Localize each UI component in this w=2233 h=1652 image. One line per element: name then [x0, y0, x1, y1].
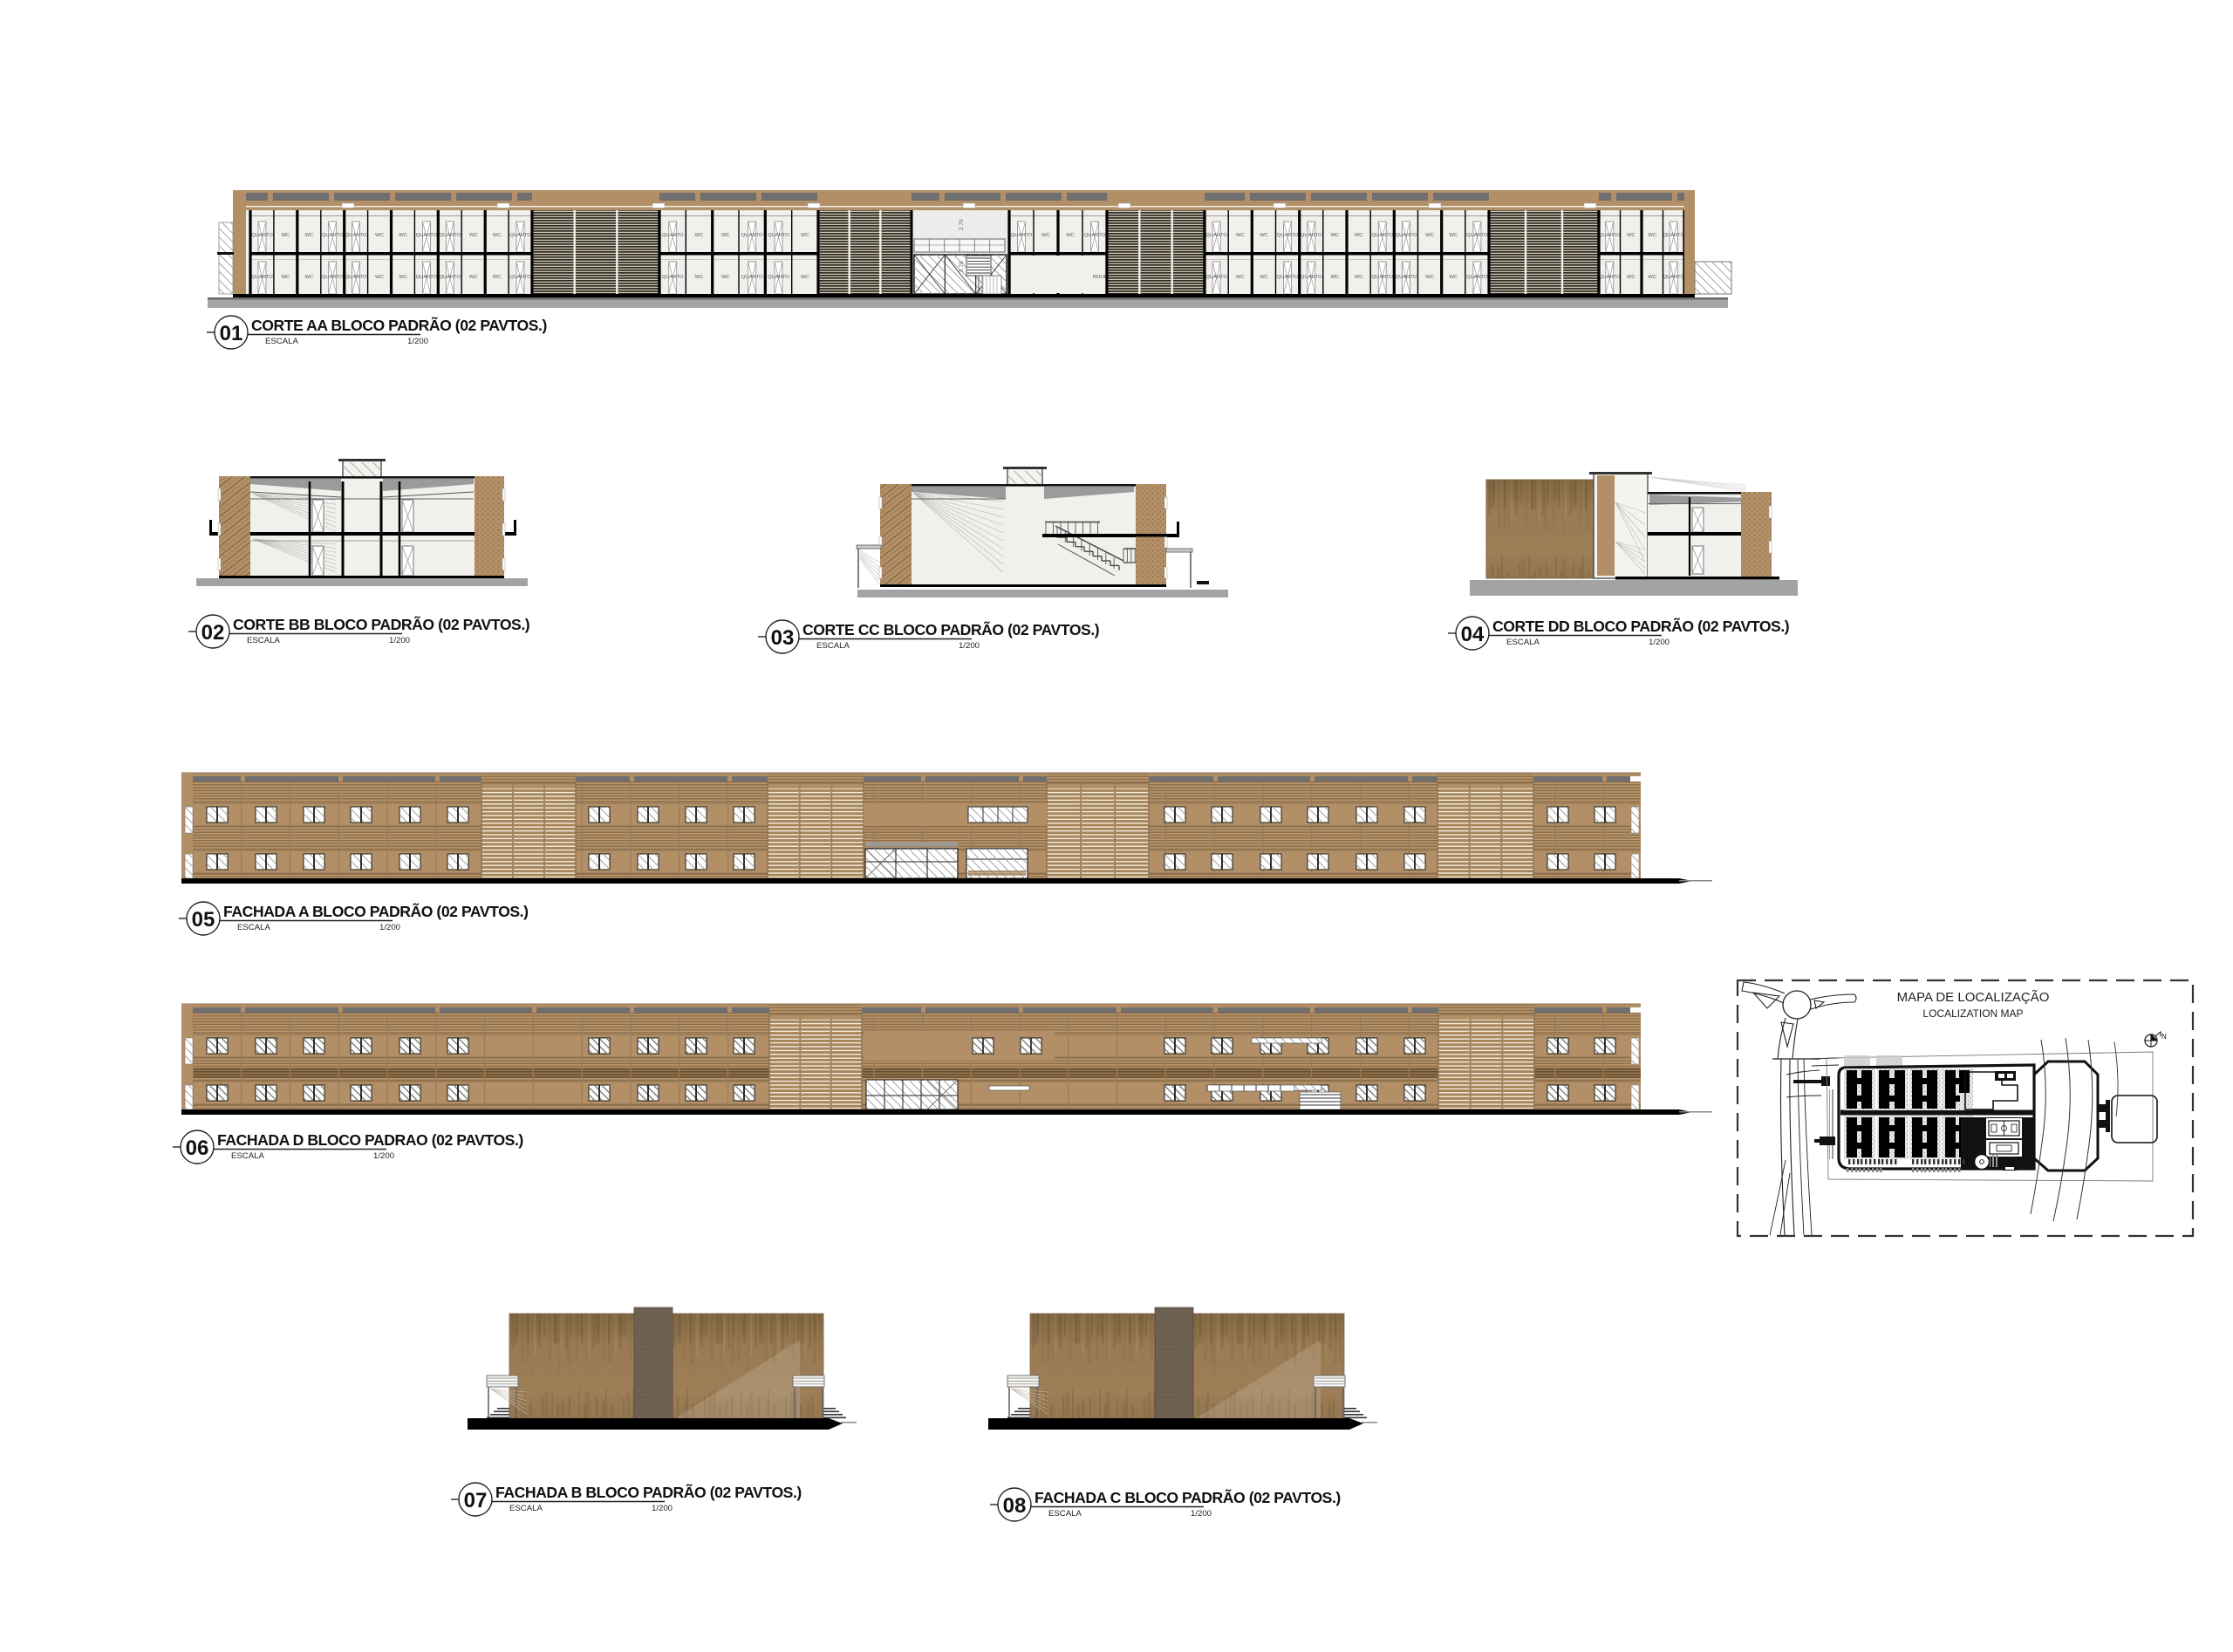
svg-text:WC: WC	[801, 275, 809, 280]
svg-text:WC: WC	[1648, 275, 1656, 280]
svg-text:QUARTO: QUARTO	[1466, 233, 1488, 238]
svg-text:QUARTO: QUARTO	[1663, 275, 1685, 280]
svg-text:WC: WC	[493, 233, 502, 238]
svg-text:1/200: 1/200	[379, 923, 400, 932]
svg-text:WC: WC	[375, 275, 384, 280]
svg-text:ESCALA: ESCALA	[816, 641, 850, 651]
svg-text:QUARTO: QUARTO	[345, 275, 367, 280]
svg-text:WC: WC	[493, 275, 502, 280]
svg-text:WC: WC	[801, 233, 809, 238]
svg-text:01: 01	[220, 322, 243, 345]
svg-text:CORTE CC BLOCO PADRÃO (02 PAVT: CORTE CC BLOCO PADRÃO (02 PAVTOS.)	[802, 620, 1099, 638]
svg-text:QUARTO: QUARTO	[768, 233, 789, 238]
svg-text:2.70: 2.70	[959, 261, 965, 272]
svg-text:QUARTO: QUARTO	[1599, 233, 1621, 238]
svg-text:WC: WC	[282, 233, 290, 238]
svg-text:WC: WC	[1331, 233, 1340, 238]
svg-text:QUARTO: QUARTO	[1396, 275, 1417, 280]
svg-text:FACHADA C BLOCO PADRÃO (02 PAV: FACHADA C BLOCO PADRÃO (02 PAVTOS.)	[1035, 1488, 1341, 1506]
svg-text:QUARTO: QUARTO	[1205, 233, 1227, 238]
svg-text:WC: WC	[375, 233, 384, 238]
svg-text:1/200: 1/200	[959, 641, 980, 651]
svg-text:QUARTO: QUARTO	[322, 275, 344, 280]
svg-text:QUARTO: QUARTO	[1277, 275, 1299, 280]
svg-text:MAPA DE LOCALIZAÇÃO: MAPA DE LOCALIZAÇÃO	[1897, 990, 2050, 1005]
svg-text:WC: WC	[721, 233, 730, 238]
svg-text:QUARTO: QUARTO	[1205, 275, 1227, 280]
svg-text:1/200: 1/200	[1191, 1509, 1212, 1519]
svg-text:04: 04	[1461, 623, 1485, 646]
svg-text:WC: WC	[1236, 233, 1245, 238]
svg-text:WC: WC	[1627, 275, 1635, 280]
svg-text:02: 02	[201, 621, 225, 645]
svg-text:ESCALA: ESCALA	[265, 337, 298, 346]
svg-text:ROUP: ROUP	[1093, 275, 1108, 280]
svg-text:08: 08	[1003, 1494, 1027, 1518]
svg-text:WC: WC	[1236, 275, 1245, 280]
svg-text:QUARTO: QUARTO	[416, 275, 438, 280]
svg-text:WC: WC	[304, 275, 313, 280]
svg-text:CORTE AA BLOCO PADRÃO (02 PAVT: CORTE AA BLOCO PADRÃO (02 PAVTOS.)	[251, 316, 547, 334]
svg-text:ESCALA: ESCALA	[231, 1151, 264, 1161]
svg-text:QUARTO: QUARTO	[1599, 275, 1621, 280]
svg-text:FACHADA A BLOCO PADRÃO (02 PAV: FACHADA A BLOCO PADRÃO (02 PAVTOS.)	[223, 902, 529, 920]
svg-text:WC: WC	[1041, 233, 1050, 238]
svg-text:ESCALA: ESCALA	[509, 1504, 543, 1513]
svg-text:1/200: 1/200	[373, 1151, 394, 1161]
svg-text:WC: WC	[1331, 275, 1340, 280]
svg-text:1/200: 1/200	[652, 1504, 673, 1513]
svg-text:WC: WC	[304, 233, 313, 238]
svg-text:QUARTO: QUARTO	[251, 233, 273, 238]
svg-text:QUARTO: QUARTO	[662, 275, 684, 280]
svg-text:WC: WC	[469, 233, 478, 238]
svg-text:WC: WC	[695, 275, 704, 280]
svg-text:ESCALA: ESCALA	[1506, 638, 1540, 647]
svg-text:QUARTO: QUARTO	[1466, 275, 1488, 280]
svg-text:QUARTO: QUARTO	[1011, 233, 1033, 238]
svg-text:FACHADA B BLOCO PADRÃO (02 PAV: FACHADA B BLOCO PADRÃO (02 PAVTOS.)	[495, 1483, 802, 1501]
svg-text:WC: WC	[1627, 233, 1635, 238]
svg-text:1/200: 1/200	[407, 337, 428, 346]
svg-text:QUARTO: QUARTO	[251, 275, 273, 280]
svg-text:WC: WC	[399, 233, 407, 238]
svg-text:WC: WC	[1260, 233, 1268, 238]
svg-text:QUARTO: QUARTO	[345, 233, 367, 238]
svg-text:FACHADA D BLOCO PADRAO (02 PAV: FACHADA D BLOCO PADRAO (02 PAVTOS.)	[217, 1131, 523, 1149]
svg-text:WC: WC	[695, 233, 704, 238]
svg-text:QUARTO: QUARTO	[662, 233, 684, 238]
svg-text:QUARTO: QUARTO	[1372, 233, 1394, 238]
svg-text:QUARTO: QUARTO	[1663, 233, 1685, 238]
svg-text:QUARTO: QUARTO	[1277, 233, 1299, 238]
svg-text:QUARTO: QUARTO	[440, 275, 461, 280]
svg-text:QUARTO: QUARTO	[1396, 233, 1417, 238]
svg-text:QUARTO: QUARTO	[509, 275, 531, 280]
svg-text:QUARTO: QUARTO	[741, 233, 763, 238]
svg-text:1/200: 1/200	[389, 636, 410, 645]
svg-text:WC: WC	[282, 275, 290, 280]
svg-text:QUARTO: QUARTO	[1301, 275, 1322, 280]
svg-text:WC: WC	[399, 275, 407, 280]
svg-text:CORTE BB BLOCO PADRÃO (02 PAVT: CORTE BB BLOCO PADRÃO (02 PAVTOS.)	[233, 615, 529, 633]
svg-text:07: 07	[464, 1489, 488, 1512]
svg-text:WC: WC	[1425, 233, 1434, 238]
svg-text:CORTE DD BLOCO PADRÃO (02 PAVT: CORTE DD BLOCO PADRÃO (02 PAVTOS.)	[1492, 617, 1789, 635]
svg-text:WC: WC	[1355, 275, 1363, 280]
svg-text:QUARTO: QUARTO	[741, 275, 763, 280]
svg-text:WC: WC	[1449, 233, 1458, 238]
svg-text:LOCALIZATION MAP: LOCALIZATION MAP	[1922, 1007, 2023, 1020]
svg-text:03: 03	[771, 626, 795, 650]
svg-text:QUARTO: QUARTO	[322, 233, 344, 238]
svg-text:QUARTO: QUARTO	[509, 233, 531, 238]
svg-text:QUARTO: QUARTO	[1372, 275, 1394, 280]
svg-text:1/200: 1/200	[1649, 638, 1670, 647]
svg-text:WC: WC	[469, 275, 478, 280]
svg-text:WC: WC	[1355, 233, 1363, 238]
svg-text:ESCALA: ESCALA	[237, 923, 270, 932]
svg-text:N: N	[2161, 1033, 2167, 1041]
svg-text:WC: WC	[1648, 233, 1656, 238]
svg-text:QUARTO: QUARTO	[1301, 233, 1322, 238]
svg-text:2.70: 2.70	[959, 219, 965, 230]
svg-text:QUARTO: QUARTO	[1084, 233, 1106, 238]
svg-text:05: 05	[192, 908, 215, 932]
svg-text:WC: WC	[721, 275, 730, 280]
svg-text:WC: WC	[1260, 275, 1268, 280]
svg-text:QUARTO: QUARTO	[440, 233, 461, 238]
svg-text:WC: WC	[1425, 275, 1434, 280]
svg-text:ESCALA: ESCALA	[247, 636, 280, 645]
svg-text:ESCALA: ESCALA	[1048, 1509, 1082, 1519]
svg-text:06: 06	[186, 1137, 209, 1160]
svg-text:WC: WC	[1066, 233, 1075, 238]
svg-text:QUARTO: QUARTO	[416, 233, 438, 238]
svg-text:QUARTO: QUARTO	[768, 275, 789, 280]
svg-text:WC: WC	[1449, 275, 1458, 280]
